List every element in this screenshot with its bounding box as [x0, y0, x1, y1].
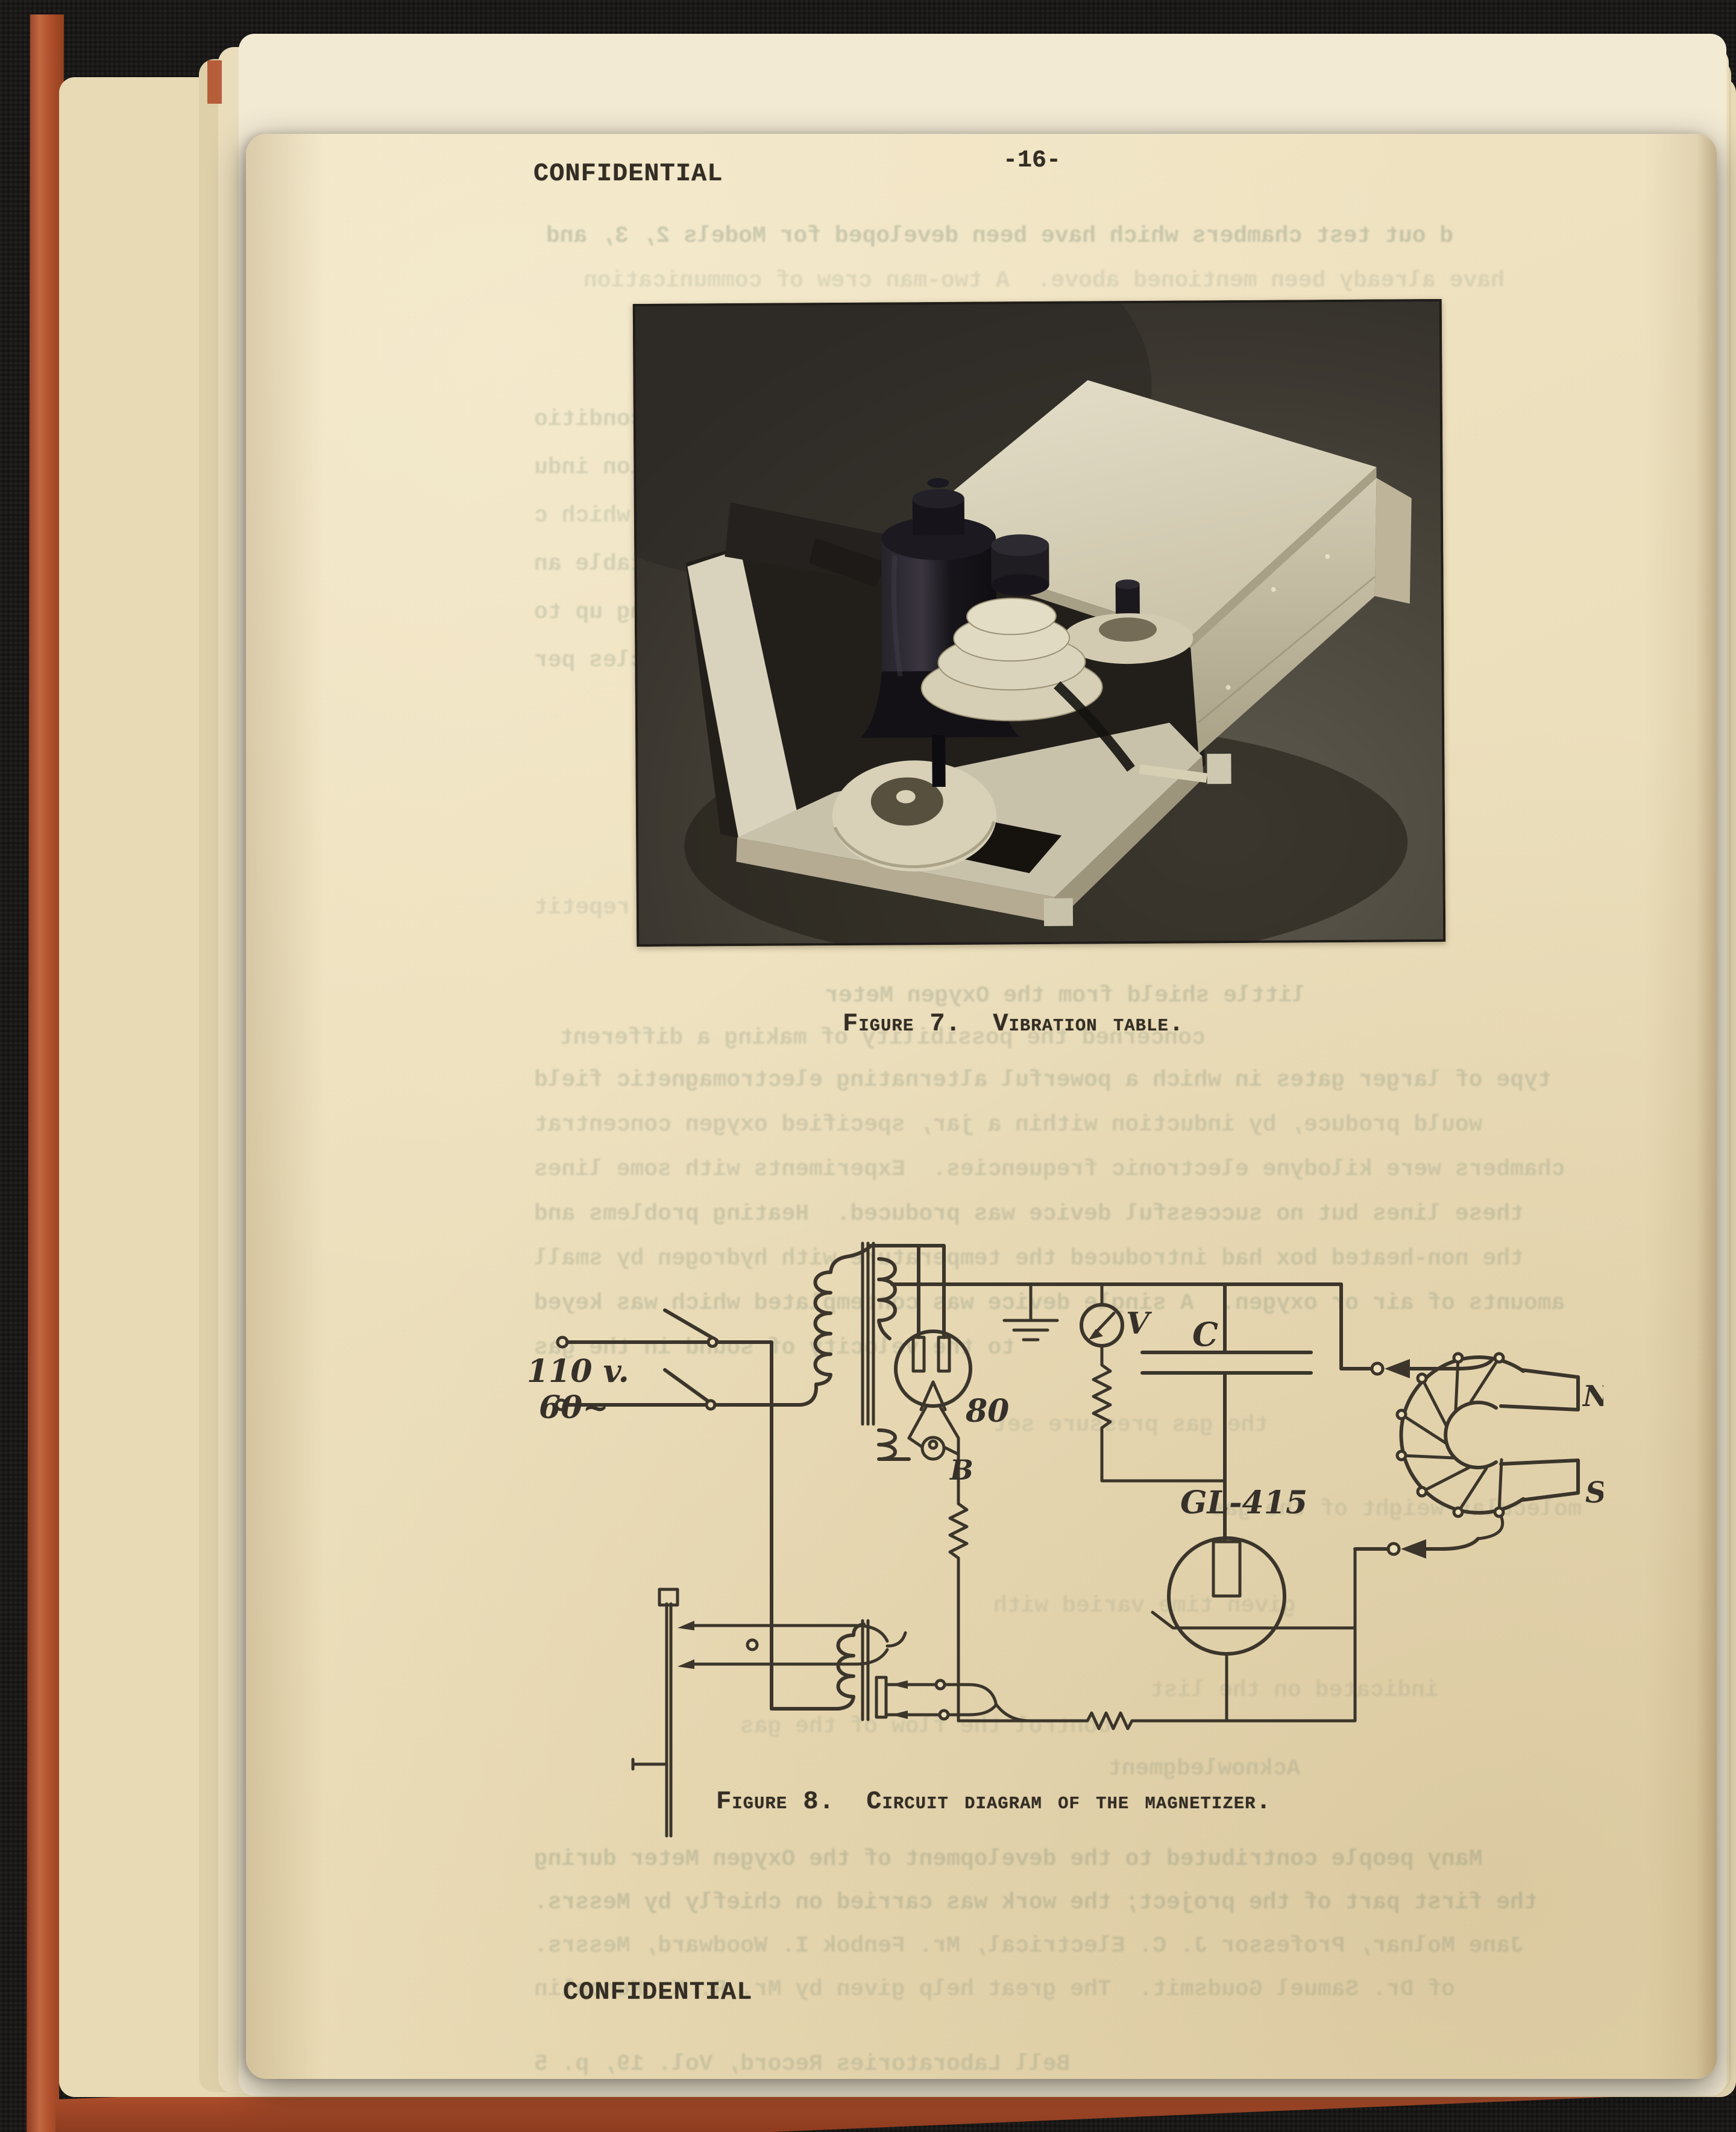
- jack-contact: [936, 1680, 945, 1689]
- tube-envelope: [896, 1331, 970, 1406]
- disc-hub-cap: [896, 790, 916, 803]
- output-terminals: [1341, 1284, 1492, 1559]
- report-page: d out test chambers which have been deve…: [246, 134, 1717, 2079]
- voltmeter-label: V: [1126, 1305, 1153, 1341]
- switch-blade: [665, 1370, 711, 1403]
- pilot-lamp: B: [909, 1437, 973, 1486]
- magnetizer-coil: N S: [1397, 1354, 1603, 1539]
- bleed-through-text: have already been mentioned above. A two…: [583, 268, 1505, 294]
- tube-plate: [939, 1337, 949, 1371]
- coil-winding: [1401, 1358, 1502, 1512]
- bleed-through-text: Bell Laboratories Record, Vol. 19, p. 5: [534, 2051, 1070, 2077]
- vibration-table-photograph: [633, 299, 1445, 947]
- meter-resistor: [1093, 1346, 1225, 1481]
- connector-pair-2: [876, 1677, 1030, 1721]
- probe-lead: [633, 1589, 678, 1836]
- jack-contact: [940, 1711, 948, 1719]
- cathode-return-bus: [958, 1549, 1355, 1729]
- connector-pair-1: [678, 1621, 905, 1669]
- arrowhead: [891, 1711, 908, 1719]
- pole-south: [1501, 1460, 1578, 1500]
- meter-needle-tip: [1089, 1329, 1103, 1340]
- arrowhead: [891, 1680, 908, 1689]
- bleed-through-text: would produce, by induction within a jar…: [534, 1112, 1482, 1138]
- thyratron-tube-gl415: GL-415: [1153, 1484, 1307, 1721]
- supply-voltage-label: 110 v.: [527, 1353, 629, 1390]
- bleeder-resistor: [950, 1504, 967, 1721]
- thyratron-label: GL-415: [1180, 1484, 1307, 1521]
- south-pole-label: S: [1585, 1476, 1603, 1510]
- cone-pulley-step: [967, 598, 1056, 635]
- arrowhead: [1401, 1539, 1426, 1559]
- output-terminal: [1372, 1363, 1383, 1374]
- scanned-book-photo: d out test chambers which have been deve…: [0, 0, 1736, 2132]
- lamp-filament-loop: [929, 1441, 937, 1448]
- bleed-through-text: the first part of the project; the work …: [534, 1890, 1538, 1916]
- motor-shaft: [932, 735, 946, 787]
- bleed-through-text: chambers were kilodyne electronic freque…: [534, 1156, 1565, 1182]
- book-cover-spine-edge: [27, 14, 64, 2132]
- capacitor-label: C: [1192, 1315, 1218, 1354]
- tube-plate: [1213, 1542, 1240, 1596]
- probe-cap: [659, 1589, 678, 1605]
- box-end-face: [1374, 478, 1412, 604]
- jack-contact: [747, 1640, 757, 1650]
- table-foot: [1207, 754, 1231, 784]
- bleed-through-text: Jane Molnar, Professor J. C. Electrical,…: [534, 1933, 1524, 1959]
- arrowhead: [678, 1621, 694, 1630]
- arrowhead: [678, 1659, 694, 1669]
- pilot-lamp-label: B: [949, 1454, 973, 1486]
- classification-stamp-top: CONFIDENTIAL: [533, 159, 723, 188]
- switch-blade: [665, 1310, 717, 1340]
- bleed-through-text: Many people contributed to the developme…: [534, 1846, 1482, 1872]
- filament-transformer: [772, 1621, 868, 1720]
- bleed-through-text: d out test chambers which have been deve…: [546, 223, 1453, 249]
- bleed-through-text: these lines but no successful device was…: [534, 1201, 1524, 1227]
- pole-north: [1501, 1370, 1578, 1410]
- table-foot: [1044, 898, 1073, 926]
- classification-stamp-bottom: CONFIDENTIAL: [563, 1978, 752, 2007]
- page-number: -16-: [1003, 147, 1061, 174]
- transformer-core: [863, 1621, 868, 1720]
- transformer-core: [863, 1243, 873, 1424]
- voltmeter: V: [1081, 1284, 1225, 1481]
- bleed-through-text: little shield from the Oxygen Meter: [825, 983, 1306, 1009]
- rectifier-tube-label: 80: [965, 1393, 1009, 1430]
- screw-dot: [1226, 685, 1231, 690]
- figure7-caption: Figure 7. Vibration table.: [843, 1009, 1184, 1038]
- screw-dot: [1325, 554, 1330, 559]
- supply-frequency-label: 60~: [539, 1389, 609, 1426]
- ground-symbol: [1004, 1284, 1057, 1340]
- magnetizer-circuit-diagram: 110 v. 60~ 80: [518, 1230, 1603, 1845]
- tube-plate: [913, 1337, 924, 1371]
- power-transformer: [816, 1243, 910, 1459]
- cover-corner-peek: [207, 60, 222, 104]
- figure8-caption: Figure 8. Circuit diagram of the magneti…: [716, 1787, 1272, 1816]
- north-pole-label: N: [1582, 1380, 1603, 1413]
- bleed-through-text: type of larger gates in which a powerful…: [534, 1067, 1551, 1093]
- screw-dot: [1271, 587, 1276, 592]
- arrowhead: [1385, 1359, 1410, 1378]
- plug-bar: [876, 1677, 886, 1717]
